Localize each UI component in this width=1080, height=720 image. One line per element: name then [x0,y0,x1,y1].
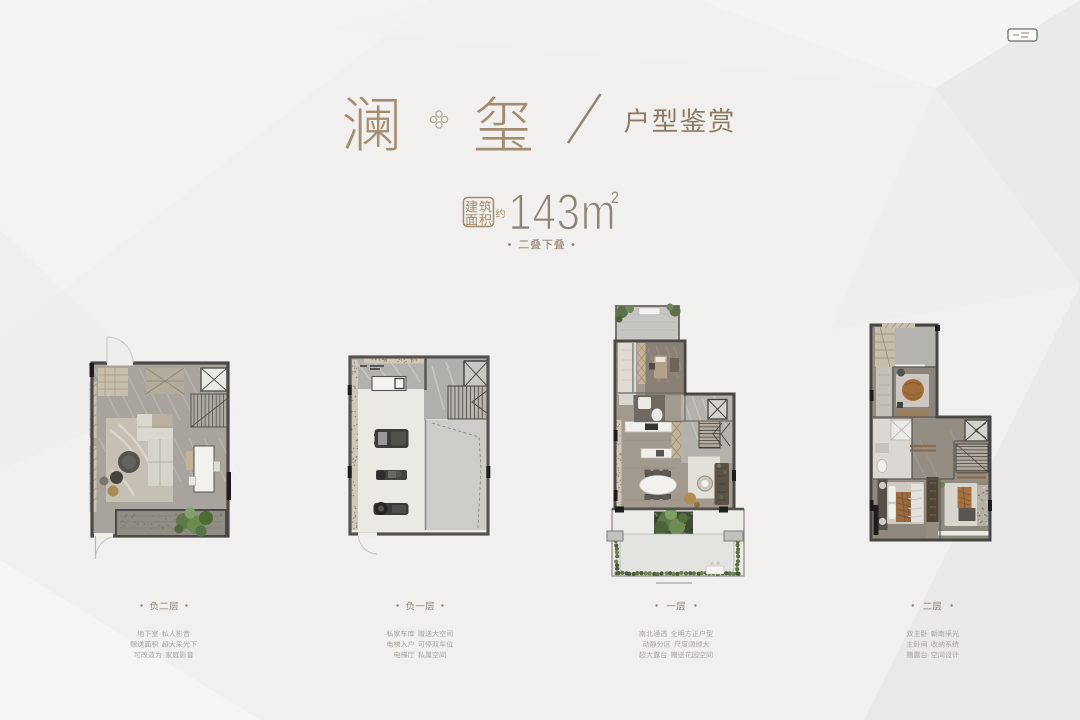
svg-text:2: 2 [611,189,619,208]
svg-text:143m: 143m [509,184,617,241]
